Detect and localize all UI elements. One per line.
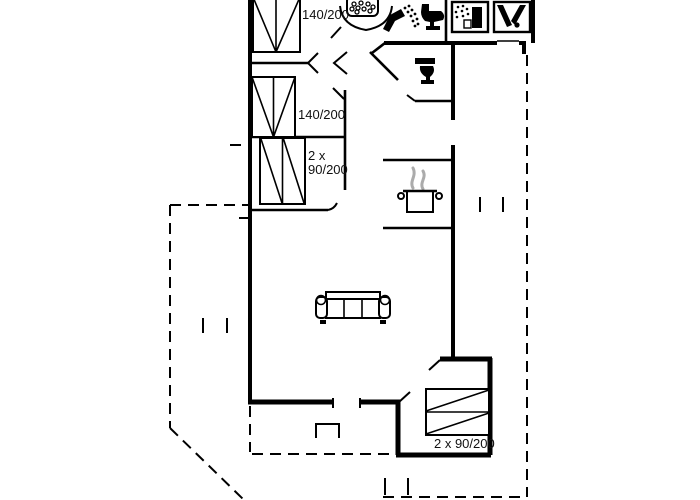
- bunk-bed-icon-annex: [426, 389, 489, 435]
- floor-plan-drawing: 140/200 140/200 2 x 90/200 2 x 90/200: [0, 0, 700, 500]
- door-swing-bedroom1: [308, 53, 318, 73]
- bed-size-label-top: 140/200: [302, 7, 349, 22]
- hand-shower-icon: [383, 5, 419, 32]
- window-marks-west-wall: [230, 145, 250, 218]
- steam-icon: [412, 168, 414, 188]
- pot-handle-left: [398, 193, 404, 199]
- toilet-icon-bathroom: [421, 4, 444, 30]
- door-swing-bathroom: [334, 52, 347, 74]
- steam-icon: [422, 171, 424, 189]
- terrace-door-jambs: [333, 398, 360, 408]
- step-marks-west: [203, 318, 227, 333]
- sofa-icon: [316, 292, 390, 324]
- double-bed-icon-middle: [252, 77, 295, 137]
- dishwasher-icon: [452, 2, 488, 32]
- cooking-pot-icon: [398, 168, 442, 212]
- bed-size-label-lower-2: 90/200: [308, 162, 348, 177]
- wall-angled-end: [372, 43, 385, 53]
- twin-bed-icon: [260, 138, 305, 204]
- bed-size-label-lower-1: 2 x: [308, 148, 326, 163]
- toilet-icon-wc: [415, 58, 435, 84]
- washing-machine-icon: [494, 2, 530, 32]
- door-swing-bedroom3: [328, 203, 337, 210]
- pot-handle-right: [436, 193, 442, 199]
- wall-hall-diagonal: [370, 52, 398, 80]
- bed-size-label-middle: 140/200: [298, 107, 345, 122]
- double-bed-icon-top: [253, 0, 300, 52]
- door-swing-annex-north: [429, 360, 440, 370]
- step-marks-south: [385, 478, 408, 495]
- door-swing-wc: [407, 95, 415, 101]
- terrace-diagonal-edge: [170, 428, 243, 499]
- door-swing-bedroom2: [333, 88, 344, 99]
- shower-enclosure-stub: [331, 27, 341, 38]
- step-marks-east: [480, 197, 503, 212]
- door-swing-annex-west: [399, 392, 410, 402]
- bed-size-label-annex: 2 x 90/200: [434, 436, 495, 451]
- wall-northeast-corner: [519, 41, 526, 54]
- hand-shower-spray: [404, 5, 420, 28]
- floor-plan: 140/200 140/200 2 x 90/200 2 x 90/200: [0, 0, 700, 500]
- pot-body: [407, 191, 433, 212]
- terrace-step: [316, 424, 339, 438]
